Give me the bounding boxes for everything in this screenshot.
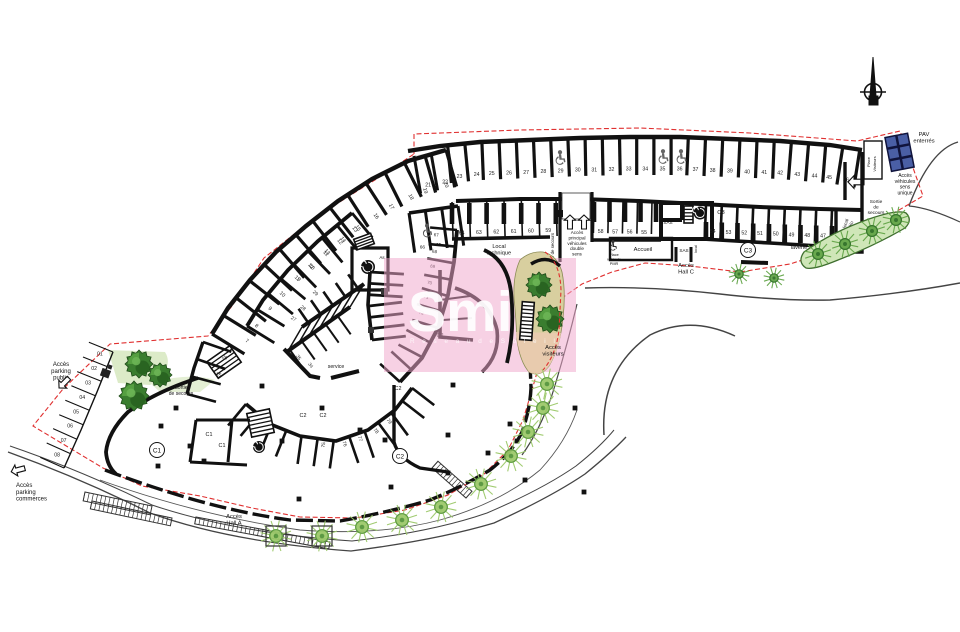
- svg-text:51: 51: [757, 231, 763, 237]
- svg-text:C2: C2: [300, 413, 307, 419]
- svg-text:61: 61: [511, 229, 517, 235]
- svg-text:60: 60: [528, 228, 534, 234]
- svg-text:66: 66: [420, 244, 426, 250]
- svg-text:commerces: commerces: [16, 497, 47, 503]
- svg-text:25: 25: [489, 171, 495, 177]
- svg-text:parking: parking: [16, 490, 36, 496]
- svg-text:02: 02: [91, 366, 97, 372]
- svg-text:33: 33: [626, 167, 632, 173]
- svg-text:Hall C: Hall C: [678, 270, 694, 276]
- svg-text:37: 37: [693, 167, 699, 173]
- svg-text:laverie: laverie: [791, 245, 807, 251]
- svg-text:véhicule: véhicule: [607, 258, 621, 262]
- svg-text:28: 28: [541, 169, 547, 175]
- svg-text:C1: C1: [219, 443, 226, 449]
- svg-text:R e s e a u d e S o l e i: R e s e a u d e S o l e i l: [410, 338, 558, 345]
- svg-text:44: 44: [812, 174, 818, 180]
- svg-text:C3: C3: [744, 247, 753, 254]
- svg-text:Accès: Accès: [226, 514, 242, 520]
- svg-text:29: 29: [558, 168, 564, 174]
- svg-text:59: 59: [545, 228, 551, 234]
- svg-text:Place: Place: [866, 156, 871, 167]
- svg-text:07: 07: [61, 438, 67, 444]
- svg-text:62: 62: [493, 229, 499, 235]
- svg-text:principal: principal: [568, 235, 585, 240]
- svg-text:23: 23: [457, 174, 463, 180]
- svg-text:Place: Place: [609, 253, 619, 257]
- svg-text:06: 06: [67, 424, 73, 430]
- svg-text:PAV: PAV: [919, 132, 930, 138]
- svg-text:C2: C2: [320, 413, 327, 419]
- svg-text:C1: C1: [153, 447, 162, 454]
- svg-text:38: 38: [710, 168, 716, 174]
- svg-text:Accès: Accès: [16, 483, 32, 489]
- svg-text:36: 36: [677, 167, 683, 173]
- svg-text:55: 55: [641, 230, 647, 236]
- svg-text:48: 48: [804, 233, 810, 239]
- svg-text:35: 35: [660, 167, 666, 173]
- svg-text:Accès: Accès: [571, 230, 584, 235]
- svg-text:56: 56: [627, 230, 633, 236]
- svg-text:24: 24: [474, 172, 480, 178]
- svg-text:41: 41: [761, 170, 767, 176]
- svg-text:local: local: [694, 245, 698, 253]
- svg-text:30: 30: [575, 168, 581, 174]
- svg-text:42: 42: [777, 171, 783, 177]
- svg-text:40: 40: [744, 169, 750, 175]
- svg-text:service: service: [328, 364, 345, 370]
- svg-text:Visiteurs: Visiteurs: [872, 156, 877, 171]
- svg-text:Accès: Accès: [678, 263, 694, 269]
- svg-text:véhicules: véhicules: [567, 241, 587, 246]
- svg-text:Hall A: Hall A: [226, 521, 241, 527]
- svg-text:C2: C2: [396, 453, 405, 460]
- svg-text:enterrés: enterrés: [913, 139, 934, 145]
- svg-text:de: de: [873, 205, 879, 211]
- svg-text:50: 50: [773, 232, 779, 238]
- svg-text:57: 57: [612, 229, 618, 235]
- svg-text:PMR: PMR: [610, 262, 619, 266]
- svg-text:63: 63: [476, 230, 482, 236]
- svg-text:SAS: SAS: [663, 220, 672, 225]
- svg-text:05: 05: [73, 409, 79, 415]
- svg-text:34: 34: [642, 167, 648, 173]
- svg-text:sens: sens: [572, 252, 582, 257]
- svg-text:Accès: Accès: [545, 345, 561, 351]
- svg-text:Sortie: Sortie: [870, 199, 883, 205]
- svg-text:54: 54: [710, 229, 716, 235]
- svg-text:43: 43: [794, 172, 800, 178]
- svg-text:58: 58: [598, 229, 604, 235]
- svg-text:SAS: SAS: [679, 248, 688, 253]
- svg-text:31: 31: [591, 167, 597, 173]
- svg-text:C1: C1: [206, 432, 213, 438]
- svg-text:03: 03: [85, 381, 91, 387]
- svg-text:visiteurs: visiteurs: [542, 352, 563, 358]
- svg-text:27: 27: [523, 170, 529, 176]
- svg-text:39: 39: [727, 169, 733, 175]
- svg-text:double: double: [570, 246, 584, 251]
- svg-text:Accès: Accès: [53, 362, 69, 368]
- svg-text:26: 26: [506, 171, 512, 177]
- svg-text:08: 08: [54, 452, 60, 458]
- svg-text:52: 52: [741, 230, 747, 236]
- svg-text:de secours: de secours: [169, 391, 194, 397]
- svg-text:Accueil: Accueil: [634, 247, 653, 253]
- svg-text:parking: parking: [51, 369, 71, 375]
- svg-text:01: 01: [97, 351, 103, 357]
- svg-text:45: 45: [826, 175, 832, 181]
- svg-text:49: 49: [789, 232, 795, 238]
- svg-text:32: 32: [609, 167, 615, 173]
- svg-text:04: 04: [79, 395, 85, 401]
- svg-text:53: 53: [726, 230, 732, 236]
- svg-text:Local: Local: [492, 244, 505, 250]
- svg-text:secours: secours: [868, 210, 885, 216]
- svg-text:unique: unique: [897, 190, 912, 196]
